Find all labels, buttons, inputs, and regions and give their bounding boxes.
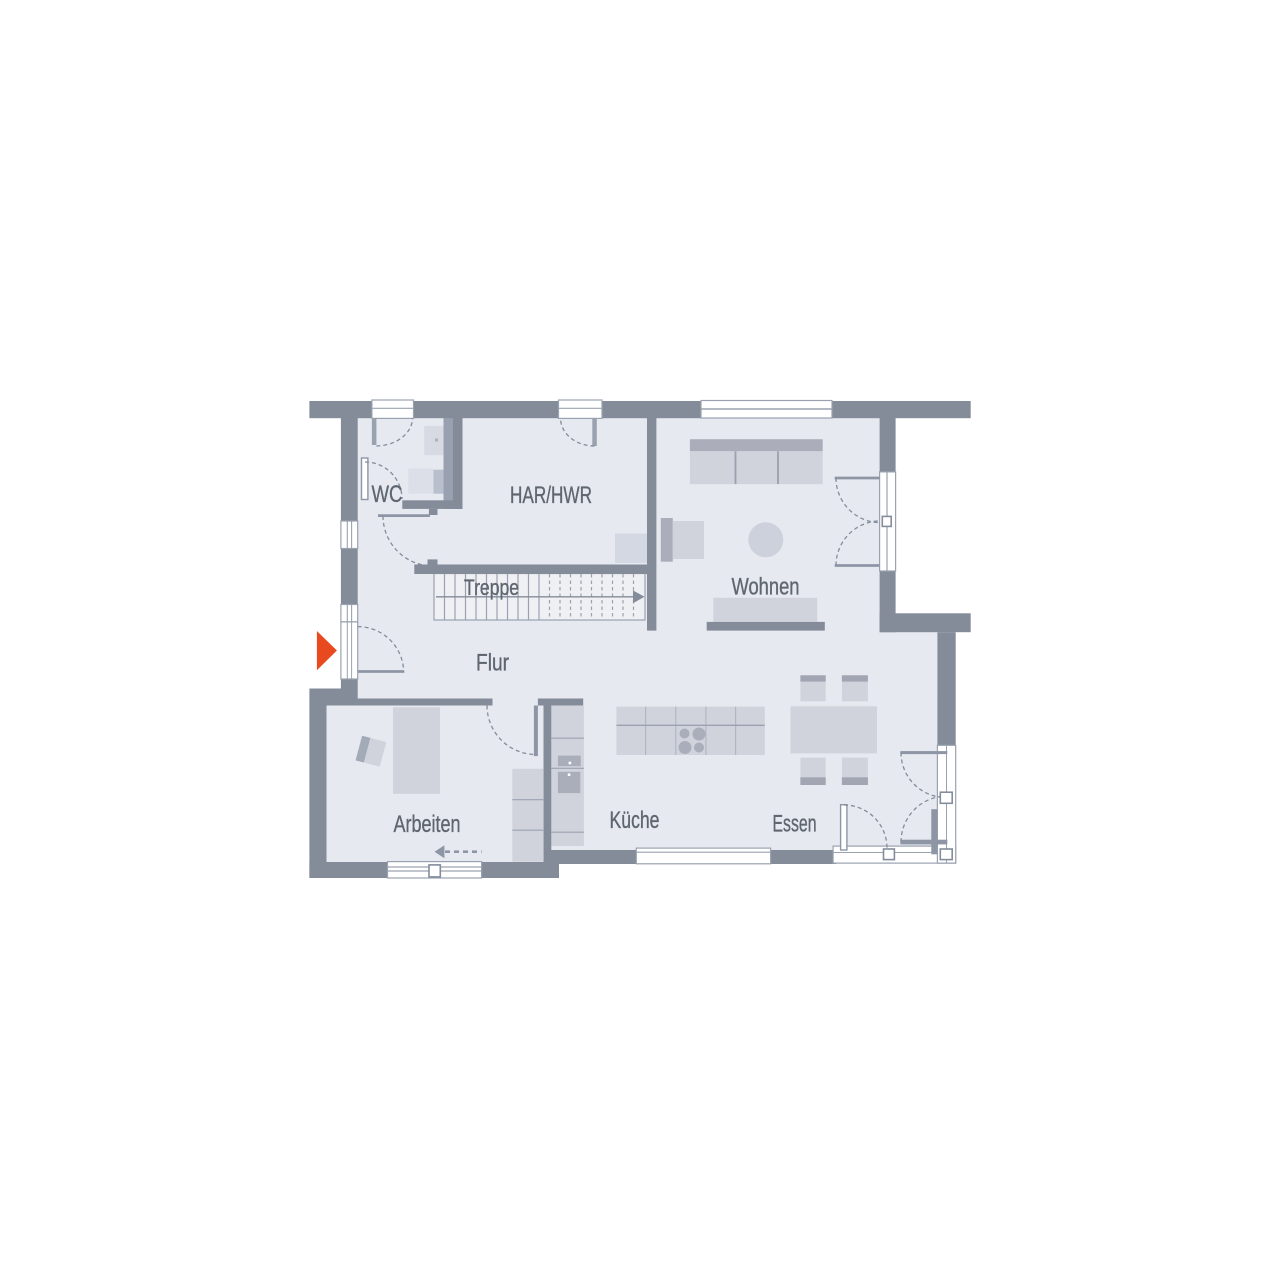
svg-text:Flur: Flur [476, 650, 509, 677]
svg-text:HAR/HWR: HAR/HWR [510, 482, 592, 509]
svg-text:Treppe: Treppe [464, 575, 519, 600]
svg-text:WC: WC [372, 481, 403, 508]
svg-text:Wohnen: Wohnen [732, 574, 800, 601]
svg-text:Essen: Essen [773, 811, 817, 838]
svg-text:Küche: Küche [610, 807, 660, 834]
svg-text:Arbeiten: Arbeiten [394, 811, 461, 838]
